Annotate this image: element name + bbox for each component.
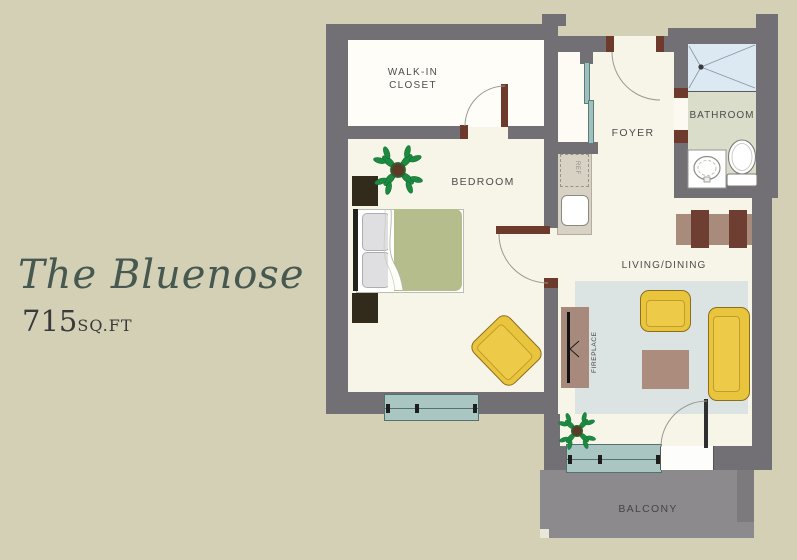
plan-title: The Bluenose	[18, 252, 318, 298]
label-walk-in-closet: WALK-IN CLOSET	[352, 66, 474, 92]
balcony-door-opening	[660, 446, 714, 470]
balcony-edge	[737, 470, 754, 522]
wall-segment	[556, 36, 608, 52]
balcony-step	[540, 529, 549, 538]
wall-segment	[544, 287, 558, 394]
wall-segment	[752, 198, 772, 470]
label-fireplace: FIREPLACE	[591, 331, 598, 373]
wall-segment	[544, 414, 560, 448]
wall-segment	[674, 184, 778, 198]
bed-headboard	[353, 209, 358, 291]
door-jamb	[674, 130, 688, 143]
kitchen-sink	[561, 195, 589, 226]
plan-area: 715SQ.FT	[22, 304, 133, 338]
bedroom-door-leaf	[496, 226, 550, 234]
label-foyer: FOYER	[592, 127, 674, 141]
wall-segment	[326, 24, 558, 40]
wall-segment	[674, 143, 688, 186]
pillow	[362, 213, 390, 251]
nightstand	[352, 176, 378, 206]
label-ref: REF	[574, 161, 580, 175]
wall-segment	[756, 14, 778, 198]
fireplace-insert	[567, 312, 570, 383]
pillow	[362, 252, 390, 288]
sofa	[708, 307, 750, 401]
coffee-table	[642, 350, 689, 389]
balcony-door-leaf	[704, 399, 708, 448]
floorplan-page: The Bluenose 715SQ.FT	[0, 0, 797, 560]
door-jamb	[656, 36, 664, 52]
wall-segment	[508, 126, 544, 139]
nightstand	[352, 293, 378, 323]
shower	[687, 43, 759, 92]
door-jamb	[460, 125, 468, 139]
wall-segment	[668, 28, 760, 44]
wall-segment	[344, 126, 462, 139]
label-bedroom: BEDROOM	[422, 176, 544, 190]
wall-segment	[326, 24, 348, 414]
door-jamb	[606, 36, 614, 52]
wall-segment	[674, 44, 688, 90]
dining-chair	[729, 210, 747, 248]
area-number: 715	[22, 304, 77, 338]
label-bathroom: BATHROOM	[661, 109, 783, 122]
door-jamb	[674, 88, 688, 98]
balcony-sliding-window	[566, 444, 662, 473]
bathroom-floor	[688, 88, 756, 186]
dining-chair	[691, 210, 709, 248]
closet-sliding-door	[584, 62, 590, 104]
bedroom-window	[384, 394, 479, 421]
door-jamb	[544, 278, 558, 288]
label-balcony: BALCONY	[587, 503, 709, 517]
closet-door-leaf	[501, 84, 508, 127]
wall-segment	[544, 24, 558, 228]
label-living-dining: LIVING/DINING	[602, 259, 726, 272]
bed-duvet	[394, 209, 462, 291]
living-armchair	[640, 290, 691, 332]
area-unit: SQ.FT	[77, 316, 132, 335]
fireplace	[561, 307, 589, 388]
